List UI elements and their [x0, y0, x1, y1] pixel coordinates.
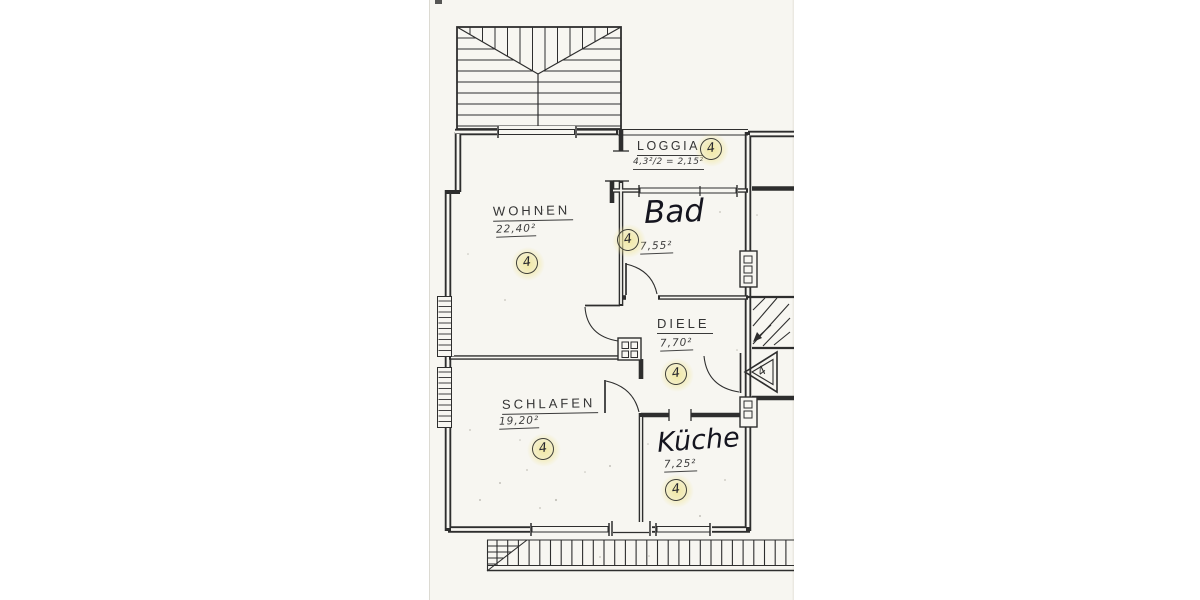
roof-hatch-box	[457, 27, 621, 129]
floorplan-drawing	[429, 0, 794, 600]
unit-badge-wohnen: 4	[511, 247, 545, 281]
unit-badge-kueche: 4	[660, 474, 694, 508]
balcony-strip	[487, 540, 794, 571]
room-area-loggia: 4,3²/2 = 2,15²	[633, 157, 704, 170]
room-label-schlafen: SCHLAFEN	[502, 396, 599, 415]
scan-speck	[435, 0, 442, 4]
interior-walls	[449, 130, 794, 530]
room-label-loggia: LOGGIA	[637, 139, 703, 156]
unit-number: 4	[616, 228, 641, 253]
scanned-floorplan-page: WOHNEN 22,40² 4 LOGGIA 4,3²/2 = 2,15² 4 …	[429, 0, 794, 600]
room-label-kueche: Küche	[656, 424, 740, 457]
unit-number: 4	[515, 251, 540, 276]
room-area-kueche: 7,25²	[664, 458, 697, 472]
staircase-hatch	[753, 298, 790, 346]
unit-number: 4	[664, 478, 689, 503]
unit-badge-diele: 4	[660, 358, 694, 392]
unit-badge-bad: 4	[612, 224, 646, 258]
room-area-schlafen: 19,20²	[499, 415, 540, 429]
unit-number: 4	[664, 362, 689, 387]
room-label-diele: DIELE	[657, 317, 713, 334]
scanned-document-canvas: { "page": { "background": "#ffffff", "pa…	[0, 0, 1200, 600]
room-label-bad: Bad	[643, 196, 704, 229]
room-area-wohnen: 22,40²	[496, 223, 537, 237]
unit-badge-schlafen: 4	[527, 433, 561, 467]
unit-badge-loggia: 4	[695, 133, 729, 167]
room-area-diele: 7,70²	[660, 337, 693, 351]
stair-direction-arrow	[753, 332, 762, 342]
room-label-wohnen: WOHNEN	[493, 203, 574, 221]
unit-number: 4	[699, 137, 724, 162]
unit-number: 4	[531, 437, 556, 462]
